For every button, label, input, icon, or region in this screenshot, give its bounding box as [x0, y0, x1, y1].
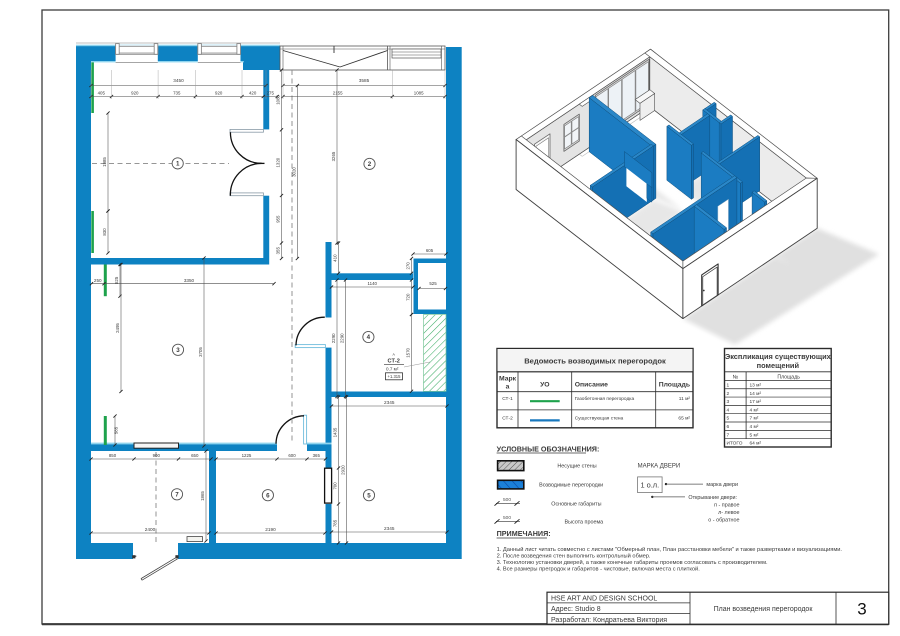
svg-text:1: 1 — [727, 382, 730, 388]
svg-text:65 м²: 65 м² — [678, 415, 690, 421]
svg-text:2: 2 — [727, 391, 730, 397]
svg-text:14 м²: 14 м² — [750, 391, 762, 397]
svg-text:ИТОГО: ИТОГО — [727, 441, 743, 447]
svg-text:ПРИМЕЧАНИЯ:: ПРИМЕЧАНИЯ: — [497, 529, 551, 538]
svg-text:6: 6 — [266, 492, 270, 499]
svg-text:МАРКА ДВЕРИ: МАРКА ДВЕРИ — [638, 464, 681, 470]
svg-text:1080: 1080 — [276, 94, 281, 104]
svg-text:17 м²: 17 м² — [750, 399, 762, 405]
svg-text:Разработал: Кондратьева Виктор: Разработал: Кондратьева Виктория — [551, 616, 667, 624]
svg-text:Несущие стены: Несущие стены — [557, 464, 596, 470]
svg-text:Высота проема: Высота проема — [565, 519, 604, 525]
svg-text:+1.315: +1.315 — [388, 374, 402, 379]
svg-text:3705: 3705 — [198, 347, 203, 357]
svg-text:13 м²: 13 м² — [750, 382, 762, 388]
svg-text:900: 900 — [153, 453, 161, 458]
svg-text:Адрес: Studio 8: Адрес: Studio 8 — [551, 606, 601, 613]
svg-text:2345: 2345 — [384, 400, 395, 405]
svg-text:Газобетонная перегородка: Газобетонная перегородка — [575, 396, 635, 402]
svg-text:Площадь: Площадь — [659, 381, 690, 388]
svg-text:1. Данный лист читать совместн: 1. Данный лист читать совместно с листам… — [497, 546, 843, 553]
svg-text:Площадь: Площадь — [777, 374, 800, 380]
svg-text:Существующая стена: Существующая стена — [575, 415, 624, 421]
svg-text:500: 500 — [503, 515, 511, 521]
svg-text:СТ-1: СТ-1 — [502, 396, 513, 402]
svg-text:а: а — [506, 383, 510, 390]
svg-text:2: 2 — [368, 161, 372, 168]
svg-text:Марк: Марк — [499, 375, 517, 382]
svg-text:2495: 2495 — [115, 323, 120, 333]
svg-text:955: 955 — [276, 215, 281, 223]
svg-text:605: 605 — [426, 248, 434, 253]
svg-text:марка двери: марка двери — [706, 482, 738, 488]
svg-text:Возводимые перегородки: Возводимые перегородки — [539, 482, 603, 488]
svg-text:625: 625 — [114, 276, 119, 284]
svg-text:270: 270 — [406, 262, 411, 270]
svg-text:УО: УО — [540, 381, 549, 388]
svg-text:275: 275 — [267, 91, 275, 96]
svg-text:помещений: помещений — [757, 361, 800, 370]
svg-text:Основные габариты: Основные габариты — [551, 501, 601, 507]
svg-text:920: 920 — [215, 91, 223, 96]
svg-text:365: 365 — [313, 453, 321, 458]
svg-text:2190: 2190 — [265, 527, 276, 532]
svg-text:HSE ART AND DESIGN SCHOOL: HSE ART AND DESIGN SCHOOL — [551, 596, 657, 603]
svg-text:830: 830 — [102, 228, 107, 236]
svg-text:1865: 1865 — [200, 491, 205, 501]
svg-text:11 м²: 11 м² — [679, 396, 691, 402]
svg-text:1225: 1225 — [242, 453, 252, 458]
svg-text:2. После возведения стен выпол: 2. После возведения стен выполнить контр… — [497, 553, 651, 560]
svg-text:1985: 1985 — [102, 157, 107, 167]
svg-text:5: 5 — [367, 492, 371, 499]
svg-text:4 м²: 4 м² — [750, 407, 759, 413]
svg-text:735: 735 — [173, 91, 181, 96]
svg-text:525: 525 — [429, 281, 437, 286]
svg-text:СТ-2: СТ-2 — [388, 359, 400, 365]
svg-text:План возведения перегородок: План возведения перегородок — [714, 606, 814, 613]
svg-text:3: 3 — [727, 399, 730, 405]
svg-text:3020: 3020 — [292, 167, 297, 177]
svg-text:850: 850 — [109, 453, 117, 458]
svg-text:л- левое: л- левое — [718, 510, 739, 516]
svg-text:2400: 2400 — [145, 527, 156, 532]
svg-text:585: 585 — [114, 426, 119, 434]
svg-text:3265: 3265 — [331, 151, 336, 161]
svg-text:2155: 2155 — [333, 91, 343, 96]
svg-text:405: 405 — [98, 91, 106, 96]
svg-text:2290: 2290 — [340, 333, 345, 343]
svg-text:2345: 2345 — [384, 526, 395, 531]
svg-text:4. Все размеры прегродок и габ: 4. Все размеры прегродок и габаритов - ч… — [497, 566, 701, 573]
svg-text:6: 6 — [727, 424, 730, 430]
svg-text:64 м²: 64 м² — [750, 441, 762, 447]
svg-text:1570: 1570 — [406, 347, 411, 357]
svg-text:420: 420 — [249, 91, 257, 96]
svg-text:5: 5 — [727, 416, 730, 422]
svg-text:СТ-2: СТ-2 — [502, 415, 513, 421]
svg-text:4: 4 — [367, 334, 371, 341]
svg-text:3450: 3450 — [173, 78, 184, 83]
svg-text:п - правое: п - правое — [714, 502, 739, 508]
svg-text:Ведомость возводимых перегород: Ведомость возводимых перегородок — [524, 357, 666, 366]
svg-text:Открывание двери:: Открывание двери: — [688, 495, 737, 501]
svg-text:720: 720 — [406, 293, 411, 301]
svg-text:785: 785 — [333, 519, 338, 527]
svg-text:2290: 2290 — [331, 333, 336, 343]
svg-text:Описание: Описание — [575, 381, 608, 388]
svg-text:1140: 1140 — [368, 281, 378, 286]
svg-text:250: 250 — [94, 278, 102, 283]
svg-text:410: 410 — [333, 254, 338, 262]
svg-text:о - обратное: о - обратное — [708, 517, 739, 523]
svg-text:650: 650 — [191, 453, 199, 458]
svg-text:700: 700 — [333, 482, 338, 490]
svg-text:3585: 3585 — [359, 78, 370, 83]
svg-text:1085: 1085 — [414, 91, 424, 96]
svg-text:№: № — [733, 374, 739, 380]
svg-text:7 м²: 7 м² — [750, 416, 759, 422]
svg-text:1 о.л.: 1 о.л. — [640, 480, 659, 489]
svg-text:1: 1 — [176, 161, 180, 168]
svg-text:4 м²: 4 м² — [750, 424, 759, 430]
svg-text:0.7 м²: 0.7 м² — [386, 366, 399, 371]
svg-text:920: 920 — [131, 91, 139, 96]
svg-text:2920: 2920 — [341, 465, 346, 475]
svg-text:355: 355 — [276, 247, 281, 255]
svg-text:3: 3 — [857, 600, 866, 619]
svg-text:500: 500 — [503, 497, 511, 503]
svg-text:3350: 3350 — [184, 278, 195, 283]
svg-text:600: 600 — [288, 453, 296, 458]
svg-text:7: 7 — [727, 432, 730, 438]
svg-text:5 м²: 5 м² — [750, 432, 759, 438]
svg-text:УСЛОВНЫЕ ОБОЗНАЧЕНИЯ:: УСЛОВНЫЕ ОБОЗНАЧЕНИЯ: — [497, 444, 600, 453]
svg-text:7: 7 — [175, 491, 179, 498]
svg-text:1435: 1435 — [333, 427, 338, 437]
svg-text:3: 3 — [176, 347, 180, 354]
svg-text:3. Технологию установки дверей: 3. Технологию установки дверей, а также … — [497, 559, 768, 566]
svg-text:Экспликация существующих: Экспликация существующих — [725, 352, 832, 361]
svg-text:1320: 1320 — [276, 157, 281, 167]
svg-text:4: 4 — [727, 407, 730, 413]
